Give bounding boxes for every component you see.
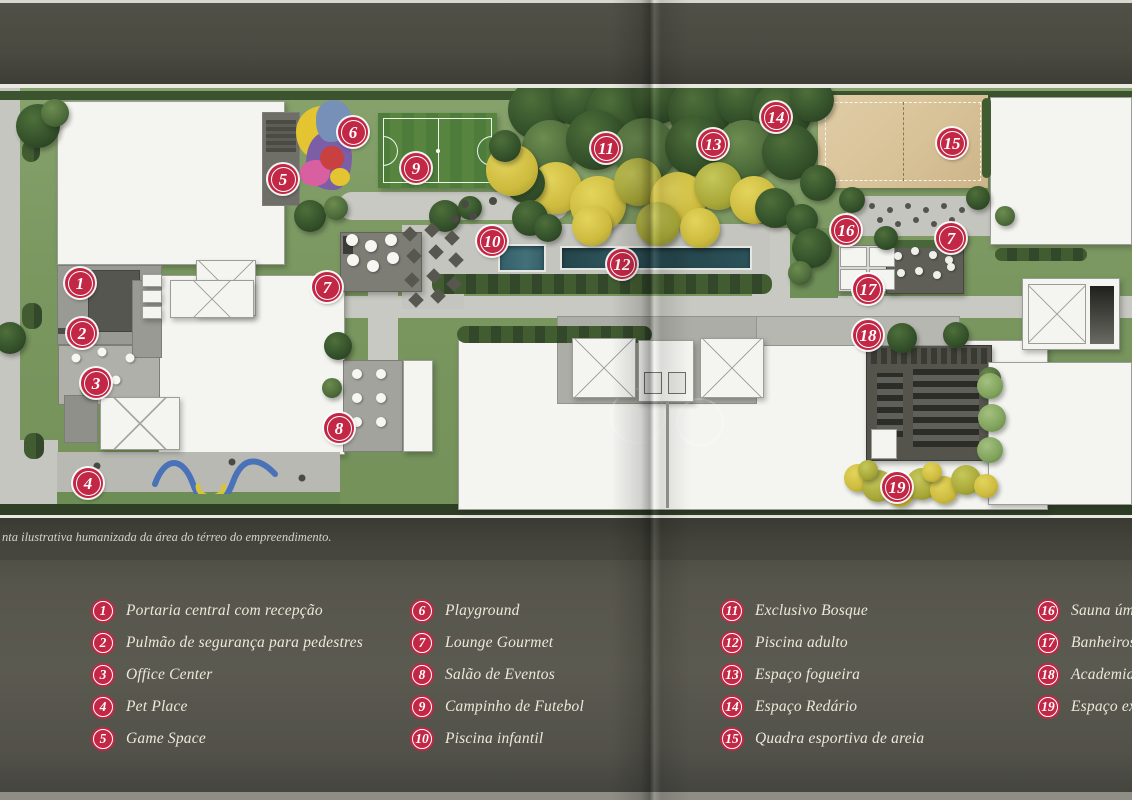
table-icon: [915, 267, 923, 275]
tree: [800, 165, 836, 201]
flowering-tree: [680, 208, 720, 248]
flowering-tree: [572, 206, 612, 246]
football-field: [378, 113, 497, 188]
kids-pool: [498, 244, 546, 272]
table-icon: [385, 234, 397, 246]
tree: [0, 322, 26, 354]
court-net-line: [903, 102, 904, 181]
table-icon: [895, 221, 901, 227]
site-plan: [0, 88, 1132, 518]
table-icon: [94, 463, 101, 470]
tree: [41, 99, 69, 127]
table-icon: [367, 260, 379, 272]
table-icon: [897, 269, 905, 277]
playground-equipment: [320, 146, 344, 170]
entrance-gate: [58, 328, 86, 334]
gym-pergola: [871, 348, 989, 364]
table-icon: [365, 240, 377, 252]
restroom: [869, 269, 895, 290]
table-icon: [923, 207, 929, 213]
service-core: [170, 280, 254, 318]
hedge-row: [432, 274, 772, 294]
gym-building: [866, 345, 992, 461]
sauna-room: [869, 247, 895, 267]
elevator-shaft: [1090, 286, 1114, 344]
table-icon: [376, 417, 386, 427]
table-icon: [949, 217, 955, 223]
tree: [966, 186, 990, 210]
service-core: [700, 338, 764, 398]
table-icon: [947, 263, 955, 271]
tree: [839, 187, 865, 213]
service-core: [100, 397, 180, 450]
table-icon: [451, 215, 459, 223]
tree: [887, 323, 917, 353]
elevator-shaft: [644, 372, 662, 394]
events-hall-building: [403, 360, 433, 452]
page-top-band: [0, 3, 1132, 84]
field-center-dot: [436, 149, 440, 153]
gym-equipment: [877, 373, 903, 437]
table-icon: [931, 221, 937, 227]
tower-building-right-bottom: [988, 362, 1132, 505]
plan-caption: nta ilustrativa humanizada da área do té…: [2, 530, 331, 545]
storage-rooms: [64, 395, 98, 443]
flowering-tree: [636, 202, 680, 246]
restroom: [840, 269, 867, 290]
tree: [534, 214, 562, 242]
hedge-row: [22, 303, 42, 329]
playground-surface: [316, 100, 352, 142]
game-space-stairs: [266, 174, 296, 182]
table-icon: [352, 369, 362, 379]
tree: [489, 130, 521, 162]
elevator-shaft: [668, 372, 686, 394]
table-icon: [911, 247, 919, 255]
table-icon: [887, 207, 893, 213]
watermark: [676, 398, 724, 446]
table-icon: [352, 393, 362, 403]
tree: [946, 227, 968, 249]
table-icon: [469, 212, 477, 220]
plan-bottom-border: [0, 515, 1132, 518]
adult-lap-pool: [560, 246, 752, 270]
building-axis: [666, 402, 669, 508]
gym-equipment: [913, 369, 979, 447]
service-core: [572, 338, 636, 398]
tree: [874, 226, 898, 250]
tree: [977, 373, 1003, 399]
tower-building-left: [57, 101, 285, 265]
planter: [888, 240, 952, 248]
tree: [788, 261, 812, 285]
tree: [324, 196, 348, 220]
table-icon: [126, 354, 135, 363]
tree: [322, 378, 342, 398]
tree: [995, 206, 1015, 226]
service-core: [1028, 284, 1086, 344]
table-icon: [112, 376, 121, 385]
table-icon: [346, 234, 358, 246]
tree: [294, 200, 326, 232]
main-walkway: [225, 296, 1132, 318]
table-icon: [959, 207, 965, 213]
table-icon: [352, 417, 362, 427]
tree: [943, 322, 969, 348]
table-icon: [905, 203, 911, 209]
table-icon: [387, 252, 399, 264]
utility-room: [142, 306, 162, 319]
flowering-tree: [858, 460, 878, 480]
table-icon: [98, 348, 107, 357]
sand-sports-court: [818, 95, 988, 188]
sauna-room: [840, 247, 867, 267]
tree: [324, 332, 352, 360]
table-icon: [941, 203, 947, 209]
table-icon: [929, 251, 937, 259]
game-space-roof: [266, 120, 296, 152]
table-icon: [869, 203, 875, 209]
table-icon: [461, 200, 469, 208]
tree: [978, 404, 1006, 432]
table-icon: [347, 254, 359, 266]
utility-room: [142, 274, 162, 287]
table-icon: [229, 459, 236, 466]
brochure-page: nta ilustrativa humanizada da área do té…: [0, 0, 1132, 800]
playground-surface: [330, 168, 350, 186]
path-vertical: [368, 284, 398, 364]
gym-restroom: [871, 429, 897, 459]
table-icon: [913, 217, 919, 223]
hedge-row: [995, 248, 1087, 261]
table-icon: [933, 271, 941, 279]
table-icon: [376, 393, 386, 403]
table-icon: [72, 354, 81, 363]
page-bottom-edge: [0, 792, 1132, 800]
utility-room: [142, 290, 162, 303]
hedge-row: [982, 98, 991, 178]
table-icon: [894, 252, 902, 260]
table-icon: [84, 376, 93, 385]
flowering-tree: [922, 462, 942, 482]
pet-agility-tunnel: [150, 454, 280, 494]
tree: [977, 437, 1003, 463]
table-icon: [877, 217, 883, 223]
table-icon: [299, 475, 306, 482]
table-icon: [376, 369, 386, 379]
hedge-row: [24, 433, 44, 459]
flowering-tree: [974, 474, 998, 498]
table-icon: [489, 197, 497, 205]
